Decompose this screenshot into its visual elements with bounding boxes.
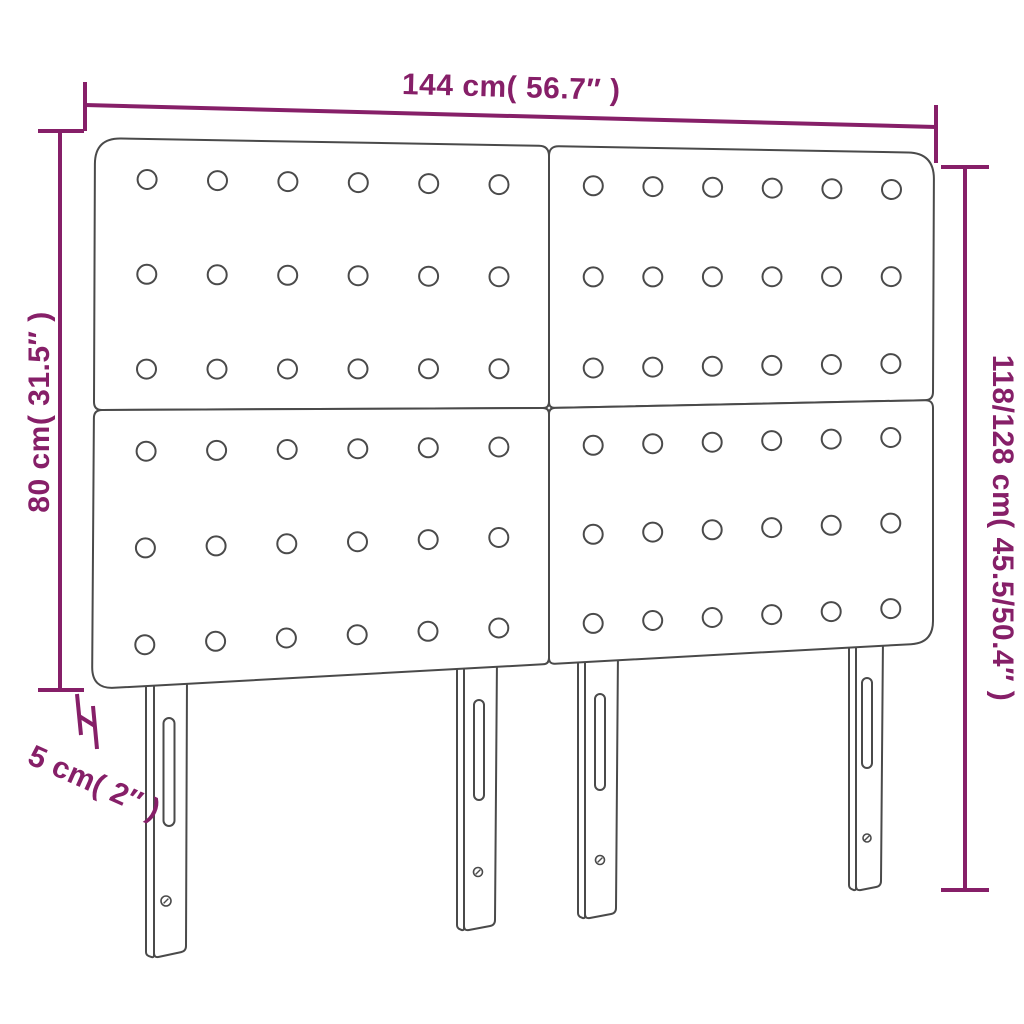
tufting-button: [348, 532, 367, 551]
tufting-button: [348, 625, 367, 644]
tufting-button: [822, 602, 841, 621]
tufting-button: [881, 428, 900, 447]
tufting-button: [489, 619, 508, 638]
headboard-panel: [94, 138, 549, 410]
depth-dim-tick-left: [77, 694, 81, 735]
tufting-button: [419, 622, 438, 641]
tufting-button: [208, 171, 227, 190]
leg-mounting-slot: [164, 718, 175, 826]
tufting-button: [881, 514, 900, 533]
tufting-button: [703, 433, 722, 452]
leg-mounting-slot: [862, 678, 872, 768]
tufting-button: [584, 176, 603, 195]
tufting-button: [763, 179, 782, 198]
headboard-legs: [146, 636, 883, 957]
tufting-button: [643, 611, 662, 630]
tufting-button: [489, 438, 508, 457]
tufting-button: [762, 356, 781, 375]
tufting-button: [822, 355, 841, 374]
tufting-button: [763, 267, 782, 286]
tufting-button: [703, 178, 722, 197]
tufting-button: [206, 632, 225, 651]
tufting-button: [584, 267, 603, 286]
tufting-button: [822, 179, 841, 198]
tufting-button: [584, 525, 603, 544]
tufting-button: [278, 266, 297, 285]
tufting-button: [277, 629, 296, 648]
tufting-button: [135, 635, 154, 654]
tufting-button: [490, 175, 509, 194]
tufting-button: [703, 520, 722, 539]
headboard-panels: [92, 138, 934, 687]
tufting-button: [277, 534, 296, 553]
tufting-button: [489, 528, 508, 547]
leg: [578, 649, 618, 918]
tufting-button: [643, 434, 662, 453]
total-height-dim-label: 118/128 cm( 45.5/50.4″ ): [986, 355, 1019, 702]
tufting-button: [643, 358, 662, 377]
leg-mounting-slot: [595, 694, 605, 790]
tufting-button: [419, 530, 438, 549]
tufting-button: [584, 436, 603, 455]
headboard-dimension-diagram: 144 cm( 56.7″ ) 80 cm( 31.5″ ) 118/128 c…: [0, 0, 1024, 1024]
tufting-button: [208, 360, 227, 379]
leg-mounting-slot: [474, 700, 484, 800]
tufting-button: [584, 614, 603, 633]
tufting-button: [419, 174, 438, 193]
width-dim-line: [85, 105, 936, 127]
tufting-button: [490, 267, 509, 286]
leg-side-edge: [457, 658, 464, 930]
tufting-button: [137, 360, 156, 379]
tufting-button: [762, 431, 781, 450]
tufting-button: [349, 173, 368, 192]
tufting-button: [703, 267, 722, 286]
tufting-button: [136, 538, 155, 557]
tufting-button: [703, 608, 722, 627]
tufting-button: [822, 516, 841, 535]
leg: [849, 636, 883, 890]
tufting-button: [349, 266, 368, 285]
tufting-button: [490, 359, 509, 378]
headboard-panel: [549, 400, 933, 664]
depth-dim-label: 5 cm( 2″ ): [23, 739, 165, 827]
diagram-stage: 144 cm( 56.7″ ) 80 cm( 31.5″ ) 118/128 c…: [0, 0, 1024, 1024]
tufting-button: [703, 357, 722, 376]
panel-height-dim-label: 80 cm( 31.5″ ): [23, 311, 56, 512]
tufting-button: [349, 359, 368, 378]
tufting-button: [419, 438, 438, 457]
headboard-panel: [92, 408, 549, 688]
tufting-button: [822, 430, 841, 449]
tufting-button: [207, 441, 226, 460]
width-dim-label: 144 cm( 56.7″ ): [402, 68, 622, 107]
tufting-button: [881, 599, 900, 618]
depth-dim-tick-right: [93, 706, 97, 749]
tufting-button: [137, 265, 156, 284]
tufting-button: [643, 177, 662, 196]
tufting-button: [137, 442, 156, 461]
tufting-button: [882, 267, 901, 286]
tufting-button: [881, 354, 900, 373]
tufting-button: [643, 267, 662, 286]
tufting-button: [584, 359, 603, 378]
tufting-button: [208, 265, 227, 284]
leg: [457, 656, 497, 930]
tufting-button: [762, 605, 781, 624]
tufting-button: [278, 440, 297, 459]
tufting-button: [822, 267, 841, 286]
tufting-button: [207, 536, 226, 555]
tufting-button: [278, 360, 297, 379]
leg-side-edge: [578, 651, 585, 918]
tufting-button: [419, 267, 438, 286]
headboard-panel: [549, 146, 934, 408]
tufting-button: [138, 170, 157, 189]
tufting-button: [348, 439, 367, 458]
tufting-button: [882, 180, 901, 199]
leg-side-edge: [849, 638, 856, 890]
tufting-button: [419, 359, 438, 378]
tufting-button: [643, 523, 662, 542]
tufting-button: [278, 172, 297, 191]
tufting-button: [762, 518, 781, 537]
